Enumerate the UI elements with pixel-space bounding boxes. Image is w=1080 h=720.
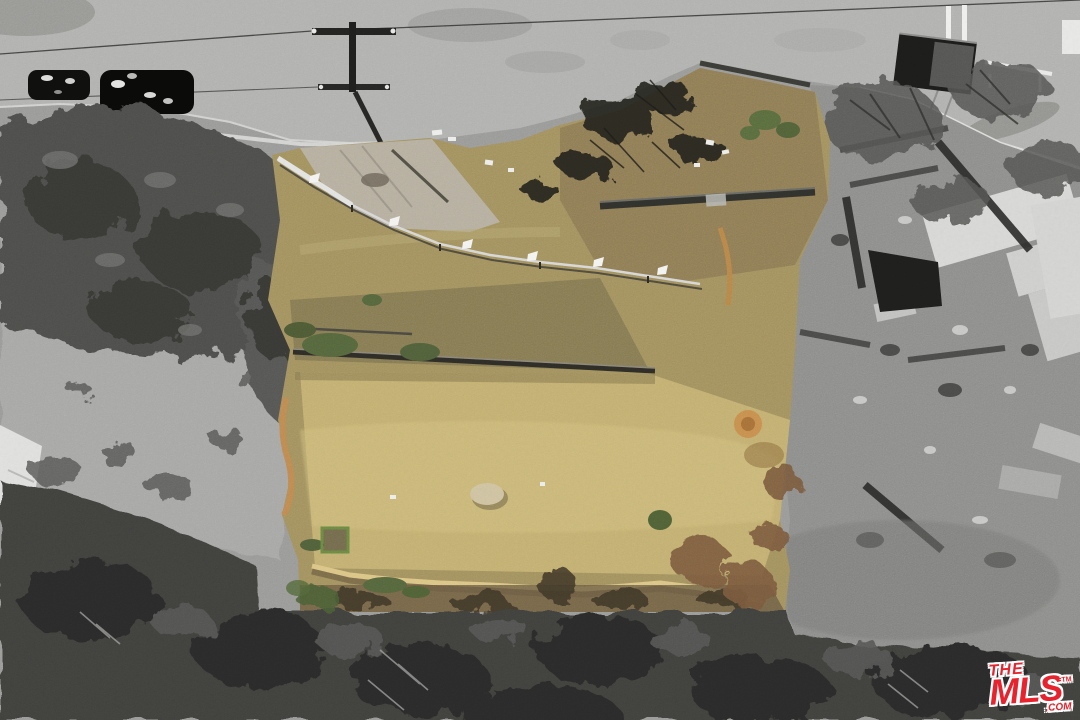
mls-watermark-tm: TM <box>1061 677 1071 683</box>
aerial-photo: Gray dirt clearing with concrete pad, le… <box>0 0 1080 720</box>
aerial-photo-canvas: Gray dirt clearing with concrete pad, le… <box>0 0 1080 720</box>
texture-grain <box>0 0 1080 720</box>
mls-watermark: THE MLSTM .COM <box>987 659 1074 716</box>
